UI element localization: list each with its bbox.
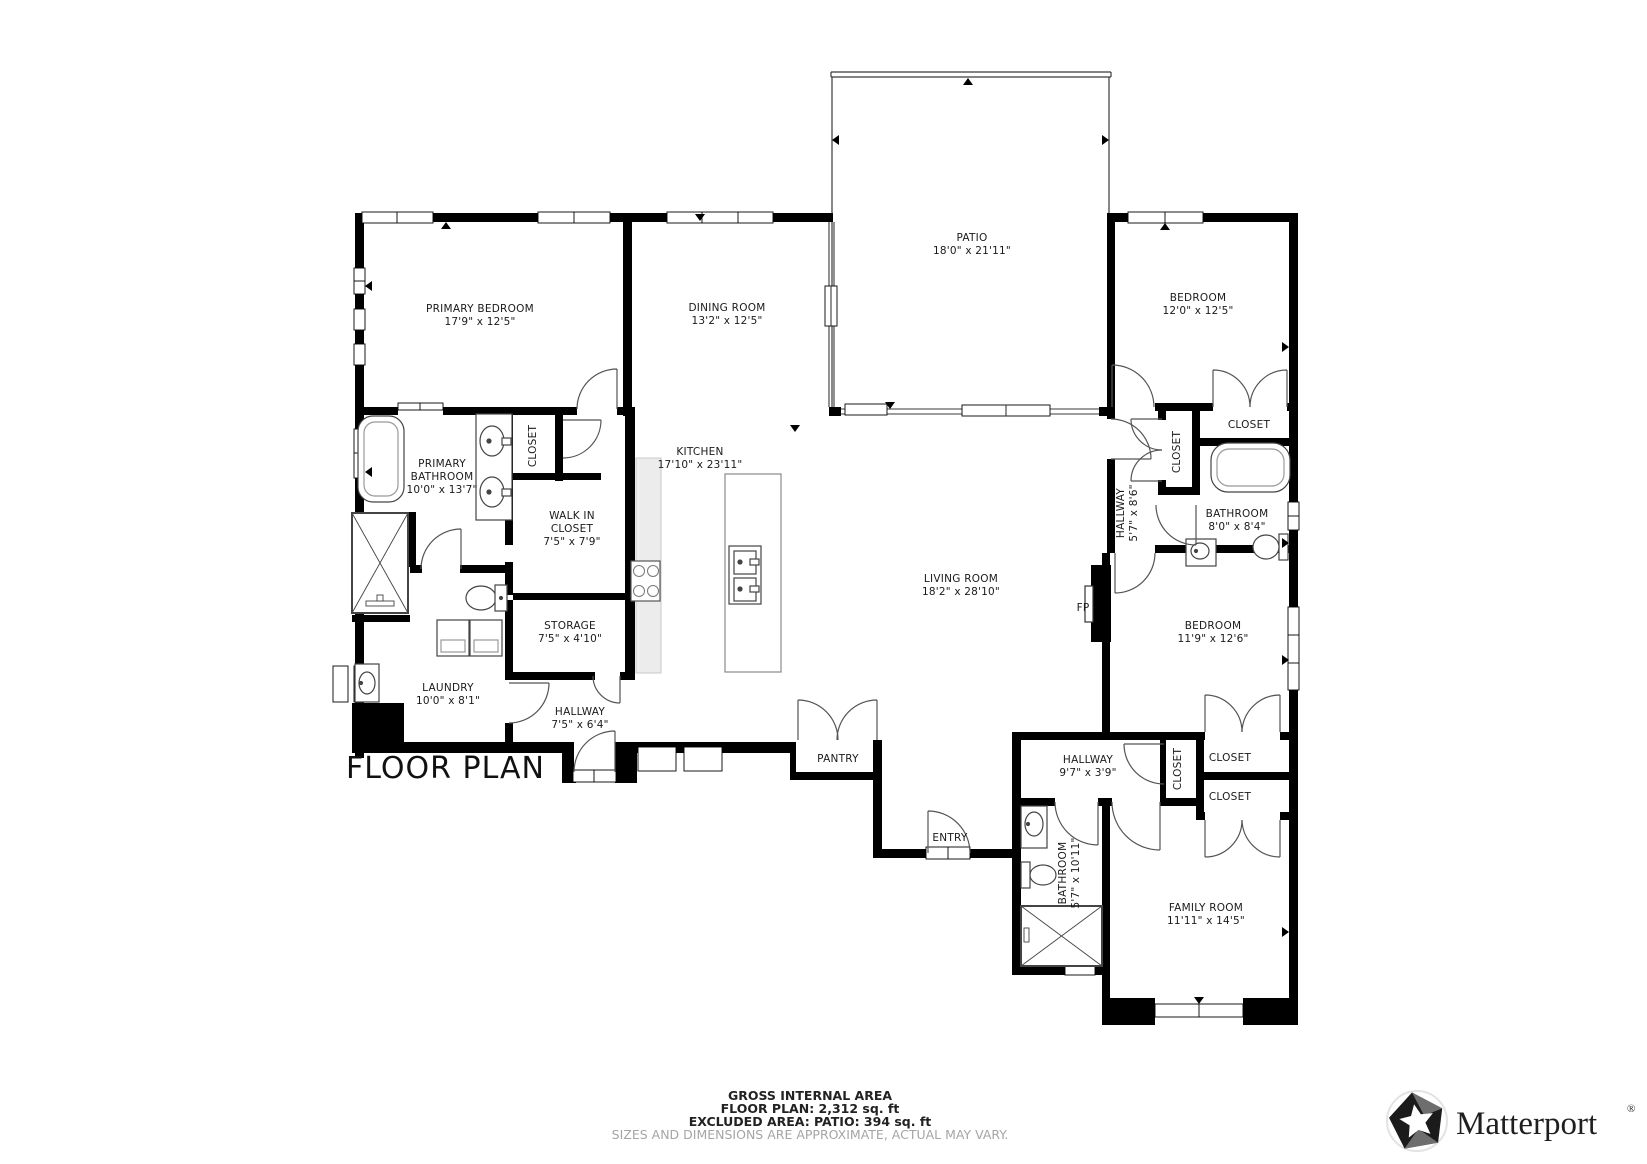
room-label-hallway-south: HALLWAY 9'7" x 3'9"	[1059, 754, 1116, 779]
room-label-hallway-east: HALLWAY 5'7" x 8'6"	[1115, 484, 1140, 541]
svg-text:10'0" x 13'7": 10'0" x 13'7"	[406, 484, 477, 496]
svg-text:KITCHEN: KITCHEN	[676, 446, 723, 458]
room-label-closet-south: CLOSET	[1172, 748, 1184, 791]
room-label-fireplace: FP	[1077, 602, 1090, 614]
toilet-south	[1021, 862, 1056, 888]
room-label-bedroom-mid: BEDROOM 11'9" x 12'6"	[1177, 620, 1248, 645]
room-label-entry: ENTRY	[932, 832, 968, 844]
room-label-family-room: FAMILY ROOM 11'11" x 14'5"	[1167, 902, 1245, 927]
svg-text:7'5" x 6'4": 7'5" x 6'4"	[551, 719, 608, 731]
svg-text:HALLWAY: HALLWAY	[1115, 488, 1127, 538]
room-label-primary-bedroom: PRIMARY BEDROOM 17'9" x 12'5"	[426, 303, 534, 328]
svg-text:PRIMARY BEDROOM: PRIMARY BEDROOM	[426, 303, 534, 315]
svg-text:LAUNDRY: LAUNDRY	[422, 682, 474, 694]
svg-text:CLOSET: CLOSET	[1209, 752, 1252, 764]
floor-plan-drawing: PRIMARY BEDROOM 17'9" x 12'5" DINING ROO…	[0, 0, 1647, 1164]
shower-primary	[352, 513, 408, 613]
svg-text:DINING ROOM: DINING ROOM	[688, 302, 765, 314]
svg-text:BEDROOM: BEDROOM	[1185, 620, 1242, 632]
svg-text:11'11" x 14'5": 11'11" x 14'5"	[1167, 915, 1245, 927]
room-label-bathroom-east: BATHROOM 8'0" x 8'4"	[1206, 508, 1269, 533]
room-label-walk-in-closet: WALK IN CLOSET 7'5" x 7'9"	[543, 510, 600, 548]
footer: GROSS INTERNAL AREA FLOOR PLAN: 2,312 sq…	[612, 1088, 1009, 1142]
svg-text:HALLWAY: HALLWAY	[1063, 754, 1113, 766]
svg-text:ENTRY: ENTRY	[932, 832, 968, 844]
svg-text:STORAGE: STORAGE	[544, 620, 596, 632]
svg-text:18'0" x 21'11": 18'0" x 21'11"	[933, 245, 1011, 257]
room-label-kitchen: KITCHEN 17'10" x 23'11"	[658, 446, 743, 471]
svg-text:12'0" x 12'5": 12'0" x 12'5"	[1162, 305, 1233, 317]
svg-text:BATHROOM: BATHROOM	[1057, 842, 1069, 905]
svg-text:5'7" x 8'6": 5'7" x 8'6"	[1128, 484, 1140, 541]
room-label-living-room: LIVING ROOM 18'2" x 28'10"	[922, 573, 1000, 598]
svg-text:CLOSET: CLOSET	[1209, 791, 1252, 803]
svg-text:PATIO: PATIO	[956, 232, 987, 244]
svg-text:8'0" x 8'4": 8'0" x 8'4"	[1208, 521, 1265, 533]
page-title: FLOOR PLAN	[346, 751, 545, 786]
svg-text:BATHROOM: BATHROOM	[411, 471, 474, 483]
footer-disclaimer: SIZES AND DIMENSIONS ARE APPROXIMATE, AC…	[612, 1127, 1009, 1142]
sink-laundry	[355, 664, 379, 702]
bathtub-east	[1211, 443, 1290, 492]
room-label-closet-family-1: CLOSET	[1209, 752, 1252, 764]
svg-text:CLOSET: CLOSET	[551, 523, 594, 535]
svg-text:5'7" x 10'11": 5'7" x 10'11"	[1070, 837, 1082, 908]
svg-text:7'5" x 7'9": 7'5" x 7'9"	[543, 536, 600, 548]
room-label-bathroom-south: BATHROOM 5'7" x 10'11"	[1057, 837, 1082, 908]
svg-text:BEDROOM: BEDROOM	[1170, 292, 1227, 304]
toilet-primary	[466, 585, 507, 611]
floor-plan-page: PRIMARY BEDROOM 17'9" x 12'5" DINING ROO…	[0, 0, 1647, 1164]
svg-text:WALK IN: WALK IN	[549, 510, 595, 522]
room-label-primary-bathroom: PRIMARY BATHROOM 10'0" x 13'7"	[406, 458, 477, 496]
room-label-hallway-west: HALLWAY 7'5" x 6'4"	[551, 706, 608, 731]
svg-text:13'2" x 12'5": 13'2" x 12'5"	[691, 315, 762, 327]
svg-text:10'0" x 8'1": 10'0" x 8'1"	[416, 695, 480, 707]
bathtub-primary	[358, 416, 404, 502]
sink-south	[1021, 806, 1047, 848]
svg-text:BATHROOM: BATHROOM	[1206, 508, 1269, 520]
kitchen-island-sink	[729, 546, 761, 604]
room-label-bedroom-top: BEDROOM 12'0" x 12'5"	[1162, 292, 1233, 317]
door-swings	[421, 365, 1287, 857]
sink-east	[1186, 539, 1216, 566]
washer-dryer	[437, 620, 502, 656]
room-label-patio: PATIO 18'0" x 21'11"	[933, 232, 1011, 257]
svg-text:CLOSET: CLOSET	[1228, 419, 1271, 431]
dining-glass-wall	[825, 222, 837, 407]
matterport-wordmark: Matterport	[1456, 1106, 1597, 1142]
room-label-closet-hall-east: CLOSET	[1171, 431, 1183, 474]
room-label-closet-bedroom: CLOSET	[1228, 419, 1271, 431]
svg-text:7'5" x 4'10": 7'5" x 4'10"	[538, 633, 602, 645]
svg-text:HALLWAY: HALLWAY	[555, 706, 605, 718]
svg-text:LIVING ROOM: LIVING ROOM	[924, 573, 998, 585]
shower-south	[1021, 906, 1102, 966]
matterport-icon	[1385, 1088, 1448, 1151]
svg-text:CLOSET: CLOSET	[1172, 748, 1184, 791]
room-label-dining-room: DINING ROOM 13'2" x 12'5"	[688, 302, 765, 327]
registered-mark: ®	[1627, 1103, 1635, 1115]
room-label-closet-family-2: CLOSET	[1209, 791, 1252, 803]
stove	[631, 561, 660, 601]
svg-text:FAMILY ROOM: FAMILY ROOM	[1169, 902, 1243, 914]
room-label-storage: STORAGE 7'5" x 4'10"	[538, 620, 602, 645]
double-vanity-primary	[476, 414, 512, 520]
patio-sliding-glass-door	[833, 404, 1107, 416]
svg-text:PRIMARY: PRIMARY	[418, 458, 466, 470]
svg-text:11'9" x 12'6": 11'9" x 12'6"	[1177, 633, 1248, 645]
room-label-closet-primary: CLOSET	[527, 425, 539, 468]
svg-text:CLOSET: CLOSET	[1171, 431, 1183, 474]
svg-text:17'10" x 23'11": 17'10" x 23'11"	[658, 459, 743, 471]
svg-text:FP: FP	[1077, 602, 1090, 614]
svg-text:PANTRY: PANTRY	[817, 753, 859, 765]
matterport-logo: Matterport ®	[1385, 1088, 1635, 1151]
room-label-pantry: PANTRY	[817, 753, 859, 765]
svg-text:17'9" x 12'5": 17'9" x 12'5"	[444, 316, 515, 328]
windows	[333, 212, 1299, 1017]
svg-text:18'2" x 28'10": 18'2" x 28'10"	[922, 586, 1000, 598]
room-label-laundry: LAUNDRY 10'0" x 8'1"	[416, 682, 480, 707]
svg-text:CLOSET: CLOSET	[527, 425, 539, 468]
svg-text:9'7" x 3'9": 9'7" x 3'9"	[1059, 767, 1116, 779]
fixtures	[352, 414, 1290, 966]
walls	[352, 213, 1298, 1025]
